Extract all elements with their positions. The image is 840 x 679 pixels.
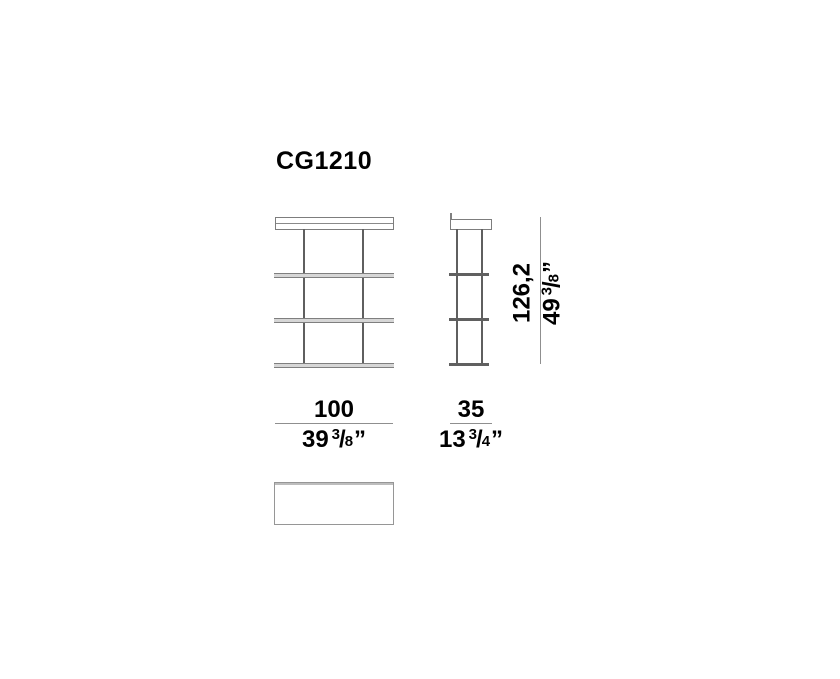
side-post-left (456, 229, 458, 364)
depth-imperial-whole: 13 (439, 426, 466, 453)
depth-imperial-denominator: 4 (482, 433, 490, 450)
height-imperial-unit: ” (539, 261, 566, 273)
top-view (274, 482, 394, 525)
side-shelf (449, 318, 489, 321)
height-metric-value: 126,2 (512, 263, 539, 323)
depth-imperial-unit: ” (491, 426, 503, 453)
top-view-front-edge (275, 483, 393, 485)
width-imperial-unit: ” (354, 426, 366, 453)
height-imperial-value: 493/8” (539, 261, 569, 325)
side-post-right (481, 229, 483, 364)
side-shelf (449, 363, 489, 366)
side-shelf (449, 273, 489, 276)
front-post-left (303, 229, 305, 366)
technical-drawing-page: CG1210 100 393/8” 35 133/4” (0, 0, 840, 679)
width-imperial-whole: 39 (302, 426, 329, 453)
width-imperial-value: 393/8” (263, 427, 405, 456)
drawing-title: CG1210 (276, 147, 372, 176)
width-metric-value: 100 (275, 399, 393, 421)
front-top-shelf-edge-line (276, 223, 393, 224)
front-shelf (274, 318, 394, 323)
front-shelf (274, 363, 394, 368)
depth-metric-value: 35 (450, 399, 492, 421)
depth-imperial-numerator: 3 (469, 426, 477, 443)
depth-imperial-value: 133/4” (429, 427, 513, 456)
height-imperial-denominator: 8 (546, 274, 563, 282)
height-dimension-label: 126,2 493/8” (512, 261, 569, 325)
front-post-right (362, 229, 364, 366)
width-imperial-denominator: 8 (345, 433, 353, 450)
height-imperial-numerator: 3 (539, 287, 556, 295)
height-imperial-whole: 49 (539, 298, 566, 325)
front-top-shelf (275, 217, 394, 230)
front-shelf (274, 273, 394, 278)
depth-dimension-line (450, 423, 492, 424)
width-imperial-numerator: 3 (332, 426, 340, 443)
width-dimension-line (275, 423, 393, 424)
